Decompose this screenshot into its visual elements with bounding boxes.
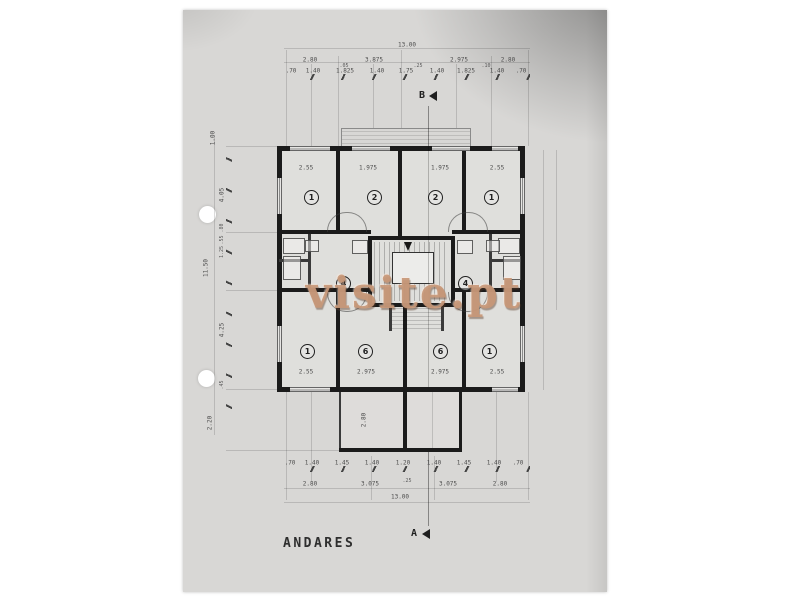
section-marker-a: A <box>411 528 417 539</box>
dim-line-ticks <box>284 466 530 472</box>
dimension-label: .70 <box>513 460 524 467</box>
fixture-sink <box>283 238 305 254</box>
punch-hole-bottom <box>198 370 215 387</box>
plan-title: ANDARES <box>283 536 355 551</box>
fixture <box>352 240 368 254</box>
extension-line <box>528 50 529 146</box>
section-marker-b-flag-icon <box>429 91 437 101</box>
dimension-label: 1.825 <box>336 68 354 75</box>
extension-line <box>226 389 277 390</box>
section-marker-b: B <box>419 90 425 101</box>
wall-interior <box>398 151 402 237</box>
room-label: 2 <box>367 190 382 205</box>
extension-line <box>226 450 339 451</box>
dimension-label: 1.825 <box>457 68 475 75</box>
dimension-label: 1.40 <box>487 460 501 467</box>
dim-line <box>214 135 215 435</box>
dimension-label: 2.80 <box>303 57 317 64</box>
dimension-label: 1.975 <box>359 165 377 172</box>
dimension-label: .70 <box>285 460 296 467</box>
garage-interior <box>339 392 462 452</box>
garage-wall <box>403 392 407 449</box>
room-label: 1 <box>300 344 315 359</box>
window <box>520 178 525 214</box>
extension-line <box>528 392 529 500</box>
dimension-label: 1.40 <box>490 68 504 75</box>
window <box>290 146 330 151</box>
dimension-label: 2.80 <box>493 481 507 488</box>
dim-line-ticks <box>226 135 232 435</box>
section-marker-a-flag-icon <box>422 529 430 539</box>
fixture <box>305 240 319 252</box>
dimension-label: 2.975 <box>431 369 449 376</box>
dimension-label: 1.975 <box>431 165 449 172</box>
room-label: 1 <box>484 190 499 205</box>
dimension-label: 2.975 <box>357 369 375 376</box>
dimension-label: 1.25 <box>219 246 225 258</box>
dimension-label: 1.45 <box>335 460 349 467</box>
window <box>290 387 330 392</box>
dimension-label: 2.20 <box>207 416 214 430</box>
dimension-label: 2.55 <box>299 165 313 172</box>
dimension-label: .70 <box>286 68 297 75</box>
dimension-label: 1.75 <box>399 68 413 75</box>
scanned-floor-plan-page: B A 1 2 2 1 4 4 1 6 6 1 13.00 2.80 3.875… <box>0 0 800 600</box>
dimension-label: .55 <box>219 235 225 244</box>
extension-line <box>286 392 287 500</box>
dimension-label: 2.80 <box>361 413 368 427</box>
dimension-label: 4.05 <box>219 188 226 202</box>
dim-line-ticks <box>284 74 530 80</box>
section-line <box>428 146 429 387</box>
dimension-label: 13.00 <box>391 494 409 501</box>
dimension-label: 1.20 <box>396 460 410 467</box>
dim-line <box>284 488 530 489</box>
dim-line <box>284 62 530 63</box>
window <box>277 326 282 362</box>
dimension-label: .70 <box>516 68 527 75</box>
dimension-label: 2.55 <box>299 369 313 376</box>
extension-line <box>226 290 277 291</box>
window <box>520 326 525 362</box>
garage-wall <box>339 392 341 450</box>
garage-wall <box>339 448 462 452</box>
dimension-label: 2.975 <box>450 57 468 64</box>
dim-line <box>284 502 530 503</box>
extension-line <box>226 232 277 233</box>
dimension-label: 2.80 <box>303 481 317 488</box>
room-label: 6 <box>358 344 373 359</box>
dimension-label: 1.40 <box>427 460 441 467</box>
room-label: 1 <box>482 344 497 359</box>
dimension-label: 3.075 <box>361 481 379 488</box>
dimension-label: 11.50 <box>203 259 210 277</box>
dimension-label: .45 <box>219 380 225 389</box>
dimension-label: 1.00 <box>210 131 217 145</box>
dimension-label: 3.875 <box>365 57 383 64</box>
window <box>352 146 390 151</box>
garage-line <box>432 392 433 448</box>
dimension-label: 2.55 <box>490 369 504 376</box>
stair-direction-arrow-icon <box>404 242 412 251</box>
dimension-label: 1.40 <box>306 68 320 75</box>
dimension-label: 2.80 <box>501 57 515 64</box>
dimension-label: 13.00 <box>398 42 416 49</box>
watermark: visite.pt <box>276 268 552 319</box>
room-label: 1 <box>304 190 319 205</box>
dimension-label: 1.45 <box>457 460 471 467</box>
extension-line <box>226 146 277 147</box>
garage-wall <box>459 392 462 450</box>
dimension-label: 3.075 <box>439 481 457 488</box>
dimension-label: .25 <box>402 478 411 484</box>
dimension-label: 1.40 <box>305 460 319 467</box>
room-label: 6 <box>433 344 448 359</box>
dimension-label: 2.55 <box>490 165 504 172</box>
dimension-label: 1.40 <box>365 460 379 467</box>
dimension-label: 4.25 <box>219 323 226 337</box>
fixture <box>486 240 500 252</box>
room-label: 2 <box>428 190 443 205</box>
window <box>277 178 282 214</box>
dimension-label: 1.40 <box>370 68 384 75</box>
section-line-B <box>428 106 429 146</box>
extension-line <box>286 50 287 146</box>
fixture-sink <box>498 238 520 254</box>
dimension-label: .80 <box>219 223 225 232</box>
extension-line <box>556 150 557 310</box>
dimension-label: .25 <box>413 63 422 69</box>
dimension-label: 1.40 <box>430 68 444 75</box>
window <box>492 146 518 151</box>
fixture <box>457 240 473 254</box>
stair-core-wall <box>368 236 455 240</box>
